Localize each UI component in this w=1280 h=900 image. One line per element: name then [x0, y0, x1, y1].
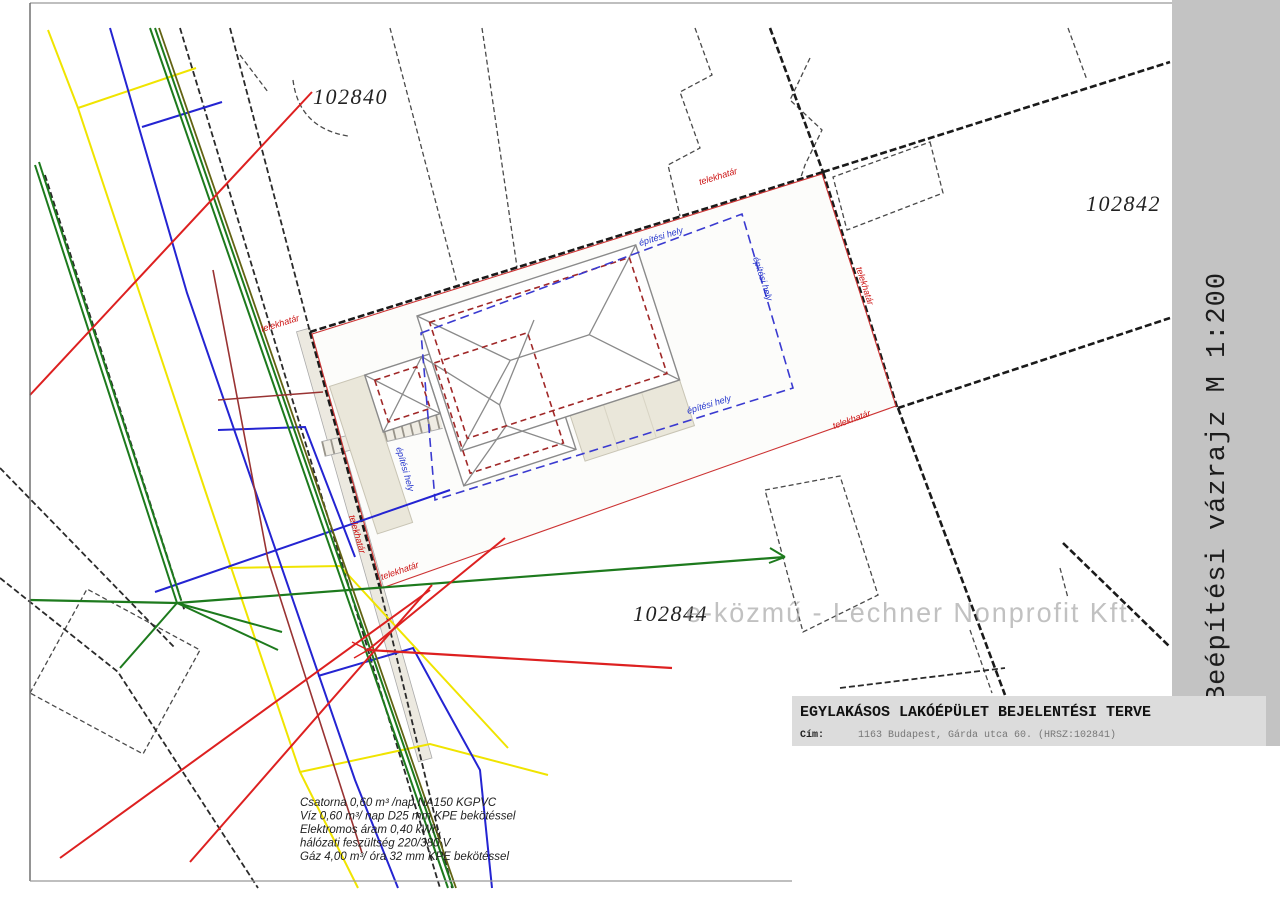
titleblock-address-label: Cím: — [800, 729, 824, 741]
parcel-label-102842: 102842 — [1086, 191, 1161, 216]
parcel-label-102840: 102840 — [313, 84, 388, 109]
titleblock-address-value: 1163 Budapest, Gárda utca 60. (HRSZ:1028… — [858, 729, 1116, 741]
site-plan-page: 102840 102842 102844 e-közmű - Lechner N… — [0, 0, 1280, 900]
note-line: hálózati feszültség 220/380 V — [300, 838, 452, 850]
boundary-label: telekhatár — [698, 166, 740, 187]
scale-sidebar: Beépítési vázrajz M 1:200 — [1172, 0, 1280, 746]
note-line: Csatorna 0,60 m³ /nap NA150 KGPVC — [300, 797, 497, 809]
site-plan-canvas: 102840 102842 102844 e-közmű - Lechner N… — [0, 0, 1280, 900]
title-block: EGYLAKÁSOS LAKÓÉPÜLET BEJELENTÉSI TERVE … — [792, 696, 1266, 746]
note-line: Víz 0,60 m³/ nap D25 mm KPE bekötéssel — [300, 811, 516, 823]
note-line: Elektromos áram 0,40 kWh, — [300, 824, 442, 836]
watermark: e-közmű - Lechner Nonprofit Kft. — [686, 597, 1138, 628]
boundary-label: telekhatár — [260, 313, 302, 334]
scale-caption: Beépítési vázrajz M 1:200 — [1203, 272, 1233, 702]
note-line: Gáz 4,00 m³/ óra 32 mm KPE bekötéssel — [300, 851, 509, 863]
titleblock-title: EGYLAKÁSOS LAKÓÉPÜLET BEJELENTÉSI TERVE — [800, 703, 1151, 721]
